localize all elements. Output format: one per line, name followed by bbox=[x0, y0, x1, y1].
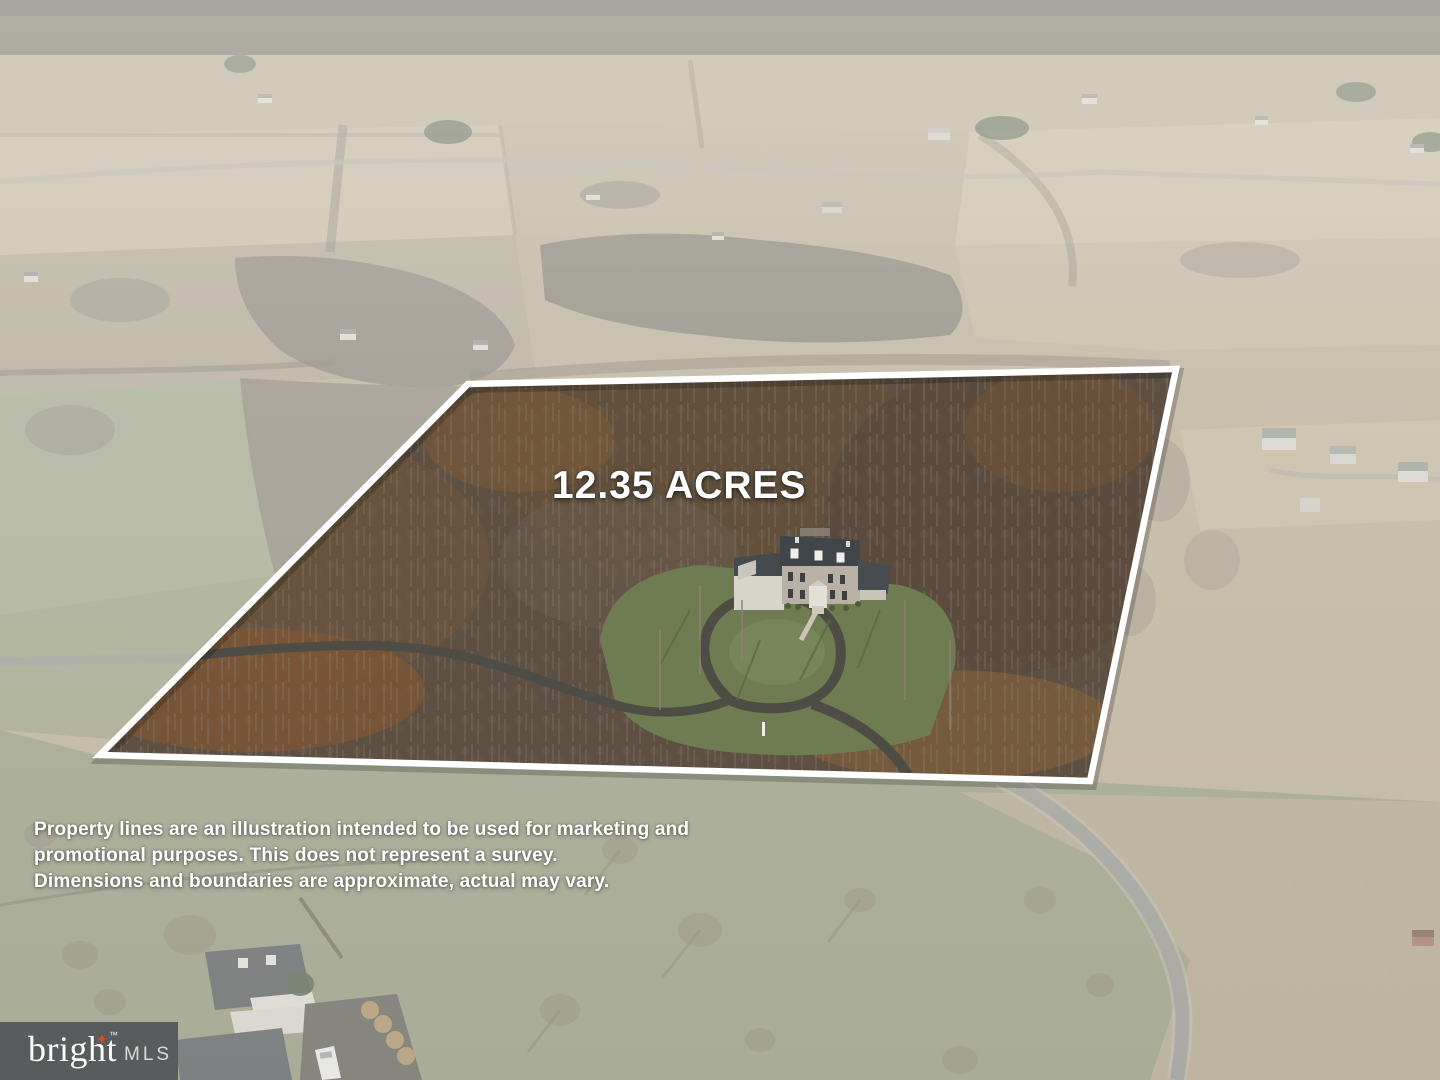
star-icon: ✦ bbox=[96, 1031, 108, 1048]
disclaimer-line-3: Dimensions and boundaries are approximat… bbox=[34, 869, 689, 895]
aerial-listing-photo: 12.35 ACRES Property lines are an illust… bbox=[0, 0, 1440, 1080]
brightmls-logo: bright ✦ ™ MLS bbox=[0, 1022, 178, 1080]
disclaimer-line-1: Property lines are an illustration inten… bbox=[34, 817, 689, 843]
trademark-symbol: ™ bbox=[109, 1030, 118, 1040]
mls-label: MLS bbox=[124, 1044, 172, 1066]
aerial-photo-scene bbox=[0, 0, 1440, 1080]
disclaimer-text: Property lines are an illustration inten… bbox=[34, 817, 689, 895]
acreage-label: 12.35 ACRES bbox=[552, 464, 807, 508]
disclaimer-line-2: promotional purposes. This does not repr… bbox=[34, 843, 689, 869]
